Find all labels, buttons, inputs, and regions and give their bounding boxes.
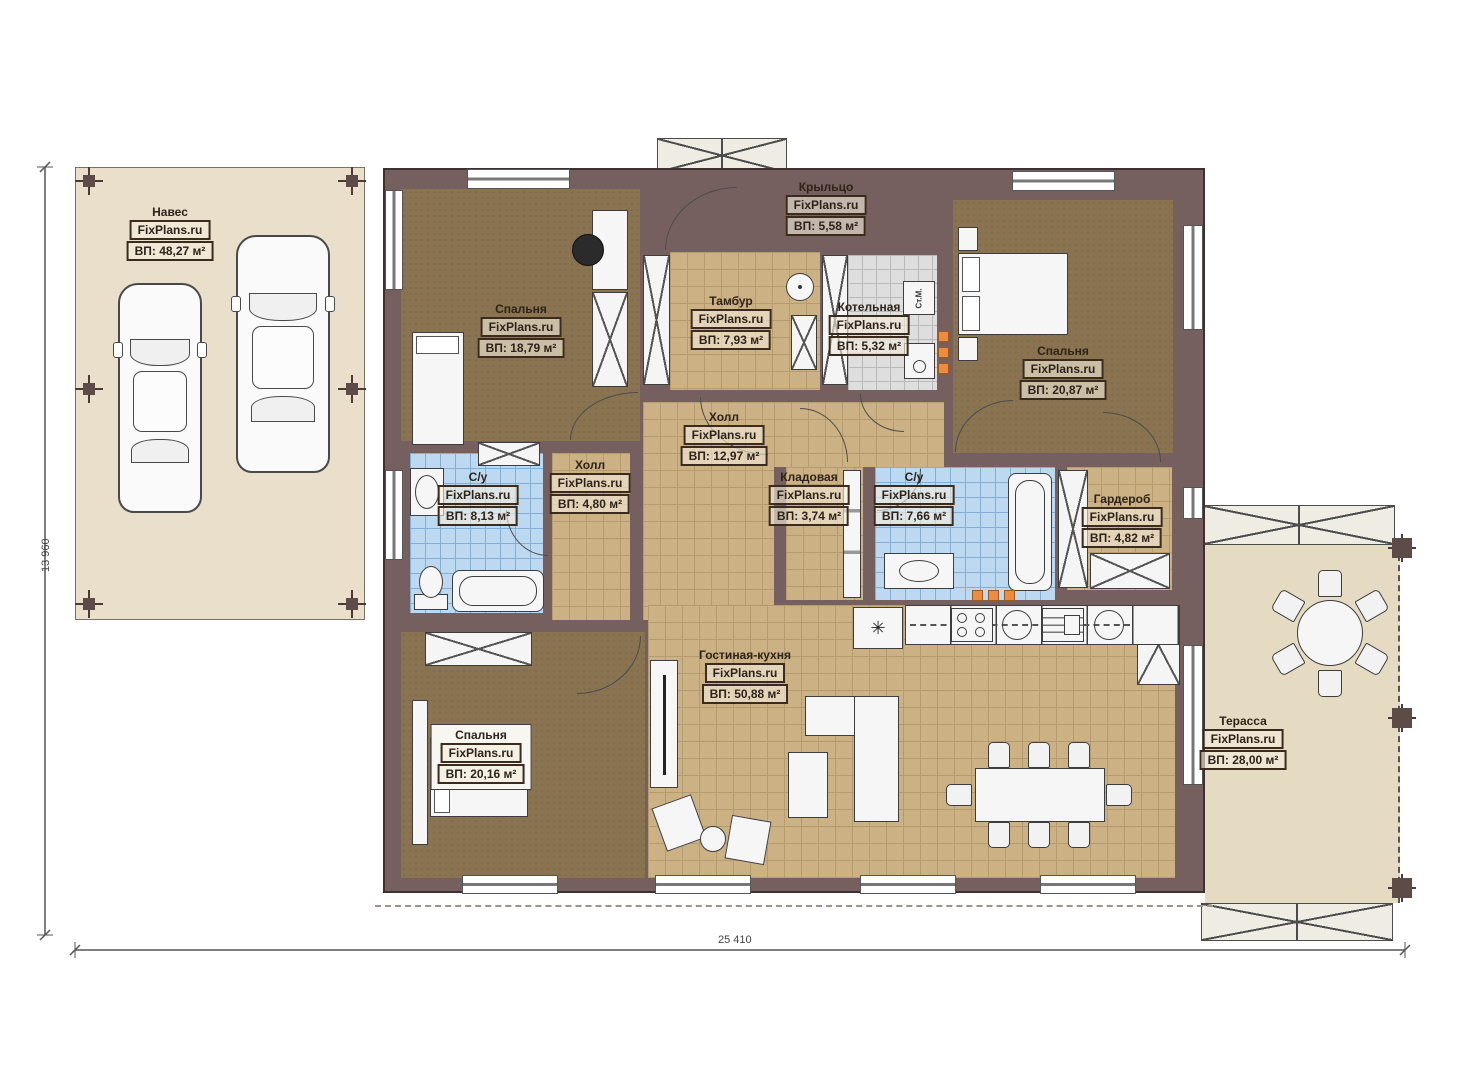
wardrobe-hatch: [425, 632, 532, 666]
closet-hatch: [791, 315, 817, 370]
sink-bowl: [899, 560, 939, 582]
room-label-bedroom1: Спальня FixPlans.ru ВП: 18,79 м²: [478, 302, 565, 358]
column-marker: [1388, 874, 1416, 902]
terrace-steps-top: [1203, 505, 1395, 545]
car-roof: [252, 326, 313, 389]
watermark: FixPlans.ru: [691, 309, 772, 329]
room-area: ВП: 7,93 м²: [691, 330, 771, 350]
bed-pillow: [962, 257, 980, 292]
stove: [951, 608, 993, 642]
bathtub: [1008, 473, 1052, 591]
tv-stand: [650, 660, 678, 788]
cabinet: [412, 700, 428, 845]
window: [860, 875, 956, 894]
room-label-bedroom2: Спальня FixPlans.ru ВП: 20,87 м²: [1020, 344, 1107, 400]
window: [462, 875, 558, 894]
watermark: FixPlans.ru: [705, 663, 786, 683]
car-rear-window: [251, 396, 316, 421]
window: [655, 875, 751, 894]
chair: [1028, 742, 1050, 768]
column-marker: [338, 590, 366, 618]
room-name: Крыльцо: [786, 180, 867, 194]
room-name: Навес: [127, 205, 214, 219]
car-mirror: [197, 342, 207, 358]
bed: [412, 332, 464, 445]
sofa-chaise: [854, 696, 899, 822]
bed-pillow: [962, 296, 980, 331]
room-label-holl2: Холл FixPlans.ru ВП: 4,80 м²: [550, 458, 631, 514]
car-windshield: [249, 293, 317, 321]
room-area: ВП: 8,13 м²: [438, 506, 518, 526]
terrace-steps-bottom: [1201, 903, 1393, 941]
star-glyph: ✳: [870, 618, 885, 639]
orange-marker: [1004, 590, 1015, 601]
watermark: FixPlans.ru: [438, 485, 519, 505]
room-name: Терасса: [1200, 714, 1287, 728]
washing-machine-label: Ст.М.: [914, 288, 923, 308]
dishwasher-door: [1064, 615, 1080, 635]
bathtub-inner: [1015, 480, 1045, 584]
column-marker: [1388, 704, 1416, 732]
watermark: FixPlans.ru: [874, 485, 955, 505]
room-name: С/у: [874, 470, 955, 484]
window: [385, 190, 403, 290]
window: [1040, 875, 1136, 894]
burner: [975, 613, 985, 623]
car: [236, 235, 330, 473]
room-label-terrace: Терасса FixPlans.ru ВП: 28,00 м²: [1200, 714, 1287, 770]
kitchen-sink: [1002, 610, 1032, 640]
watermark: FixPlans.ru: [1082, 507, 1163, 527]
room-area: ВП: 18,79 м²: [478, 338, 565, 358]
room-name: Кладовая: [769, 470, 850, 484]
room-name: Спальня: [478, 302, 565, 316]
boiler-dial: [913, 360, 926, 373]
dining-table: [975, 768, 1105, 822]
chair: [1318, 670, 1342, 697]
room-area: ВП: 7,66 м²: [874, 506, 954, 526]
room-area: ВП: 5,32 м²: [829, 336, 909, 356]
room-name: Тамбур: [691, 294, 772, 308]
chair: [946, 784, 972, 806]
chair: [1106, 784, 1132, 806]
window: [1012, 171, 1115, 191]
column-marker: [338, 375, 366, 403]
room-label-bedroom3: Спальня FixPlans.ru ВП: 20,16 м²: [431, 724, 532, 790]
watermark: FixPlans.ru: [481, 317, 562, 337]
burner: [975, 627, 985, 637]
room-label-su1: С/у FixPlans.ru ВП: 8,13 м²: [438, 470, 519, 526]
column-marker: [75, 167, 103, 195]
window: [1183, 225, 1203, 330]
room-name: Спальня: [1020, 344, 1107, 358]
watermark: FixPlans.ru: [550, 473, 631, 493]
window: [385, 470, 403, 560]
chair: [1028, 822, 1050, 848]
chair: [1318, 570, 1342, 597]
watermark: FixPlans.ru: [441, 743, 522, 763]
watermark: FixPlans.ru: [829, 315, 910, 335]
watermark: FixPlans.ru: [684, 425, 765, 445]
room-area: ВП: 4,80 м²: [550, 494, 630, 514]
coffee-table: [788, 752, 828, 818]
bathtub-inner: [459, 576, 537, 606]
appliance-star-icon: ✳: [853, 607, 903, 649]
room-area: ВП: 28,00 м²: [1200, 750, 1287, 770]
room-name: Спальня: [438, 728, 525, 742]
office-chair: [572, 234, 604, 266]
column-marker: [75, 590, 103, 618]
room-area: ВП: 3,74 м²: [769, 506, 849, 526]
ceiling-light: [786, 273, 814, 301]
orange-marker: [988, 590, 999, 601]
chair: [988, 742, 1010, 768]
room-name: Гардероб: [1082, 492, 1163, 506]
room-label-naves: Навес FixPlans.ru ВП: 48,27 м²: [127, 205, 214, 261]
chair: [1068, 822, 1090, 848]
orange-marker: [972, 590, 983, 601]
wardrobe-hatch: [1090, 553, 1170, 589]
armchair: [724, 815, 771, 865]
sink-counter: [884, 553, 954, 589]
room-area: ВП: 5,58 м²: [786, 216, 866, 236]
dimension-width: 25 410: [718, 934, 752, 946]
kitchen-sink-2: [1094, 610, 1124, 640]
room-name: С/у: [438, 470, 519, 484]
room-area: ВП: 4,82 м²: [1082, 528, 1162, 548]
room-label-kryltso: Крыльцо FixPlans.ru ВП: 5,58 м²: [786, 180, 867, 236]
column-marker: [1388, 534, 1416, 562]
orange-marker: [938, 363, 949, 374]
sink-bowl: [415, 475, 439, 509]
room-area: ВП: 12,97 м²: [681, 446, 768, 466]
car-mirror: [325, 296, 335, 312]
room-area: ВП: 50,88 м²: [702, 684, 789, 704]
bed-pillow: [416, 336, 459, 354]
car: [118, 283, 202, 513]
column-marker: [338, 167, 366, 195]
watermark: FixPlans.ru: [786, 195, 867, 215]
tv-screen: [663, 675, 666, 775]
dimension-height: 13 960: [40, 538, 52, 572]
terrace-table: [1297, 600, 1363, 666]
room-name: Холл: [681, 410, 768, 424]
floor-plan-canvas: Ст.М. ✳: [0, 0, 1473, 1080]
column-marker: [75, 375, 103, 403]
car-mirror: [231, 296, 241, 312]
ottoman: [700, 826, 726, 852]
burner: [957, 627, 967, 637]
bathtub: [452, 570, 544, 612]
orange-marker: [938, 331, 949, 342]
room-name: Холл: [550, 458, 631, 472]
chair: [1068, 742, 1090, 768]
window: [1183, 487, 1203, 519]
watermark: FixPlans.ru: [769, 485, 850, 505]
car-mirror: [113, 342, 123, 358]
closet-hatch: [643, 255, 670, 385]
light-dot: [798, 285, 802, 289]
room-label-kotelnaya: Котельная FixPlans.ru ВП: 5,32 м²: [829, 300, 910, 356]
room-name: Котельная: [829, 300, 910, 314]
room-label-kladovaya: Кладовая FixPlans.ru ВП: 3,74 м²: [769, 470, 850, 526]
nightstand: [958, 227, 978, 251]
room-label-garderob: Гардероб FixPlans.ru ВП: 4,82 м²: [1082, 492, 1163, 548]
dishwasher: [1042, 608, 1084, 642]
watermark: FixPlans.ru: [130, 220, 211, 240]
room-area: ВП: 48,27 м²: [127, 241, 214, 261]
nightstand: [958, 337, 978, 361]
room-label-living: Гостиная-кухня FixPlans.ru ВП: 50,88 м²: [699, 648, 791, 704]
car-windshield: [130, 339, 191, 366]
room-label-su2: С/у FixPlans.ru ВП: 7,66 м²: [874, 470, 955, 526]
bed: [958, 253, 1068, 335]
watermark: FixPlans.ru: [1023, 359, 1104, 379]
car-roof: [133, 371, 187, 432]
orange-marker: [938, 347, 949, 358]
roof-overhang-line: [375, 905, 1213, 907]
room-label-tambur: Тамбур FixPlans.ru ВП: 7,93 м²: [691, 294, 772, 350]
room-name: Гостиная-кухня: [699, 648, 791, 662]
toilet-bowl: [419, 566, 443, 598]
room-label-holl: Холл FixPlans.ru ВП: 12,97 м²: [681, 410, 768, 466]
burner: [957, 613, 967, 623]
watermark: FixPlans.ru: [1203, 729, 1284, 749]
wardrobe-hatch: [592, 292, 628, 387]
cabinet-hatch: [478, 442, 540, 466]
room-area: ВП: 20,87 м²: [1020, 380, 1107, 400]
chair: [988, 822, 1010, 848]
car-rear-window: [131, 439, 189, 464]
room-area: ВП: 20,16 м²: [438, 764, 525, 784]
window: [467, 169, 570, 189]
